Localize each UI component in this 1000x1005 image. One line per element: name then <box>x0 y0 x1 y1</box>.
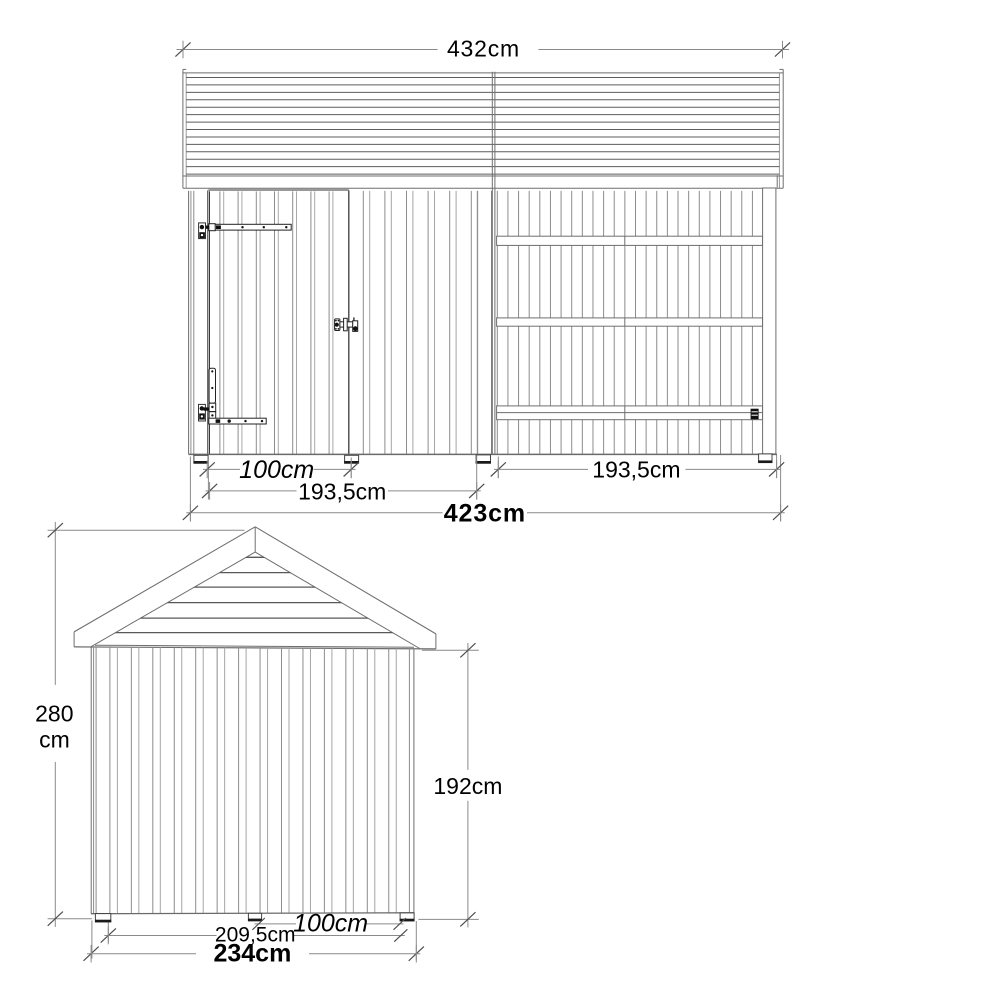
svg-text:234cm: 234cm <box>213 940 291 968</box>
svg-text:280: 280 <box>35 701 73 727</box>
svg-text:192cm: 192cm <box>433 773 502 799</box>
svg-text:cm: cm <box>39 727 70 753</box>
svg-text:432cm: 432cm <box>447 36 520 62</box>
svg-text:193,5cm: 193,5cm <box>592 456 680 482</box>
svg-text:100cm: 100cm <box>293 909 368 937</box>
svg-text:193,5cm: 193,5cm <box>298 479 386 505</box>
svg-text:423cm: 423cm <box>444 499 526 527</box>
